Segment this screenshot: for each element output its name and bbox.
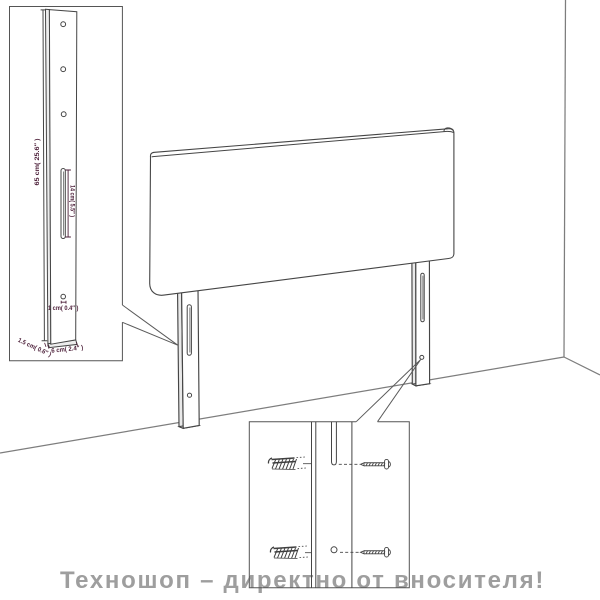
svg-text:1.5 cm( 0.6″ ): 1.5 cm( 0.6″ ) [17, 337, 53, 359]
svg-text:1 cm( 0.4″ ): 1 cm( 0.4″ ) [48, 305, 79, 312]
svg-text:Техношоп – директно от вносите: Техношоп – директно от вносителя! [60, 567, 545, 594]
svg-text:14 cm( 5.5″ ): 14 cm( 5.5″ ) [69, 185, 76, 217]
svg-text:65 cm( 25.6″ ): 65 cm( 25.6″ ) [34, 139, 41, 186]
